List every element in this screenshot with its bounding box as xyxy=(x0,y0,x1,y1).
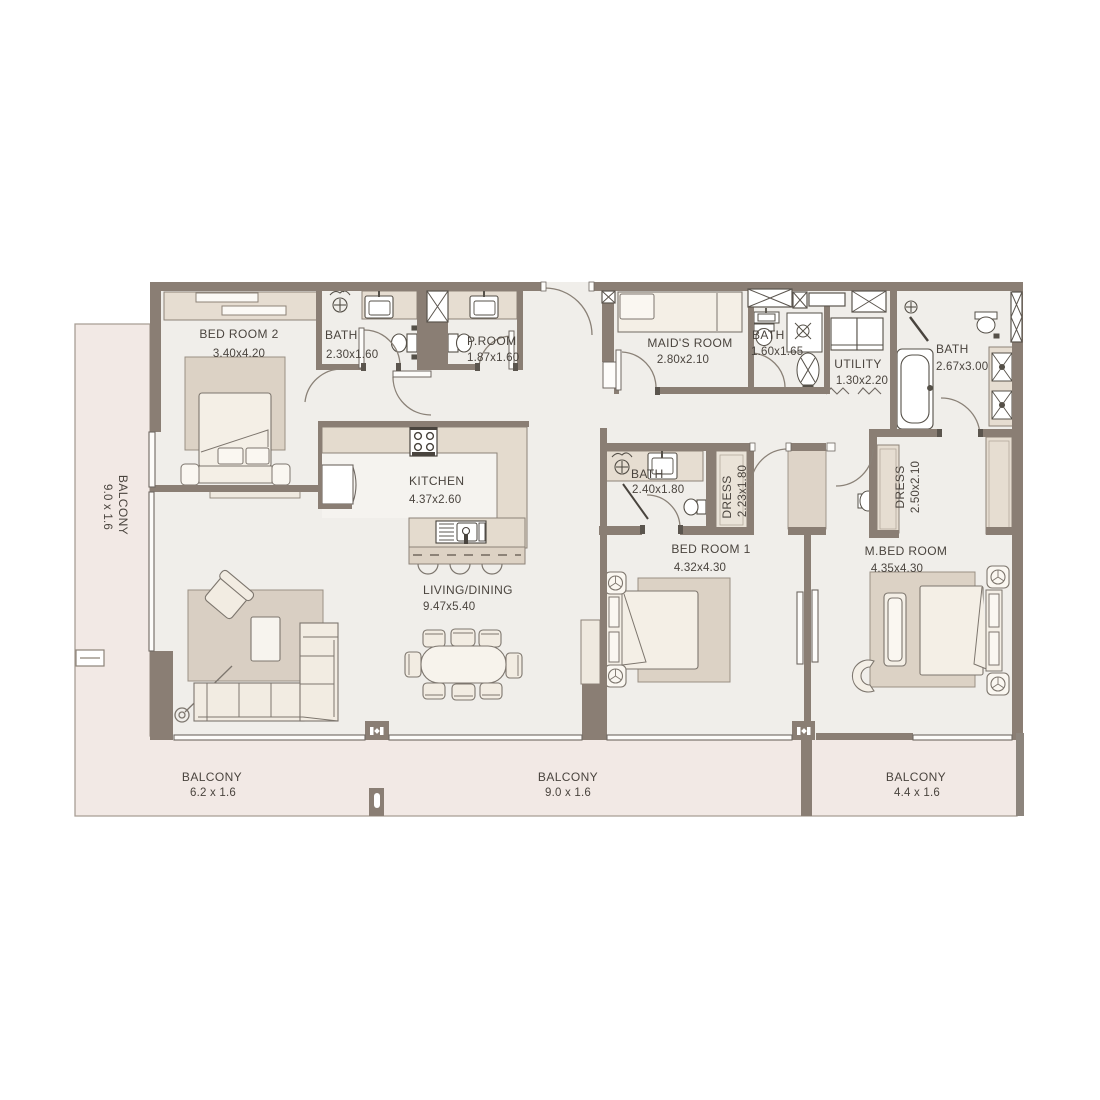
svg-text:BATH: BATH xyxy=(936,342,969,356)
svg-text:BALCONY: BALCONY xyxy=(886,770,946,784)
svg-text:6.2 x 1.6: 6.2 x 1.6 xyxy=(190,787,236,799)
svg-text:BED ROOM 1: BED ROOM 1 xyxy=(671,542,750,556)
svg-text:BALCONY: BALCONY xyxy=(116,475,130,535)
svg-text:LIVING/DINING: LIVING/DINING xyxy=(423,583,513,597)
svg-text:2.30x1.60: 2.30x1.60 xyxy=(326,349,378,361)
svg-text:DRESS: DRESS xyxy=(720,475,734,518)
svg-text:BATH: BATH xyxy=(752,328,785,342)
svg-text:BALCONY: BALCONY xyxy=(182,770,242,784)
svg-text:4.32x4.30: 4.32x4.30 xyxy=(674,562,726,574)
svg-text:DRESS: DRESS xyxy=(893,465,907,508)
svg-text:1.60x1.65: 1.60x1.65 xyxy=(751,346,803,358)
svg-text:2.67x3.00: 2.67x3.00 xyxy=(936,361,988,373)
svg-text:1.87x1.60: 1.87x1.60 xyxy=(467,352,519,364)
svg-text:9.0 x 1.6: 9.0 x 1.6 xyxy=(101,484,113,530)
svg-text:UTILITY: UTILITY xyxy=(834,357,881,371)
svg-text:2.40x1.80: 2.40x1.80 xyxy=(632,484,684,496)
svg-text:KITCHEN: KITCHEN xyxy=(409,474,464,488)
svg-text:BALCONY: BALCONY xyxy=(538,770,598,784)
svg-text:9.47x5.40: 9.47x5.40 xyxy=(423,601,475,613)
svg-text:1.30x2.20: 1.30x2.20 xyxy=(836,375,888,387)
svg-text:3.40x4.20: 3.40x4.20 xyxy=(213,348,265,360)
svg-text:2.80x2.10: 2.80x2.10 xyxy=(657,354,709,366)
svg-text:BED ROOM 2: BED ROOM 2 xyxy=(199,327,278,341)
svg-text:4.35x4.30: 4.35x4.30 xyxy=(871,563,923,575)
svg-text:4.4 x 1.6: 4.4 x 1.6 xyxy=(894,787,940,799)
svg-text:MAID'S ROOM: MAID'S ROOM xyxy=(647,336,732,350)
svg-text:M.BED ROOM: M.BED ROOM xyxy=(865,544,948,558)
svg-text:BATH: BATH xyxy=(325,328,358,342)
svg-text:4.37x2.60: 4.37x2.60 xyxy=(409,494,461,506)
svg-text:P.ROOM: P.ROOM xyxy=(467,334,517,348)
svg-text:BATH: BATH xyxy=(631,467,664,481)
svg-text:2.23x1.80: 2.23x1.80 xyxy=(737,465,749,517)
svg-text:9.0 x 1.6: 9.0 x 1.6 xyxy=(545,787,591,799)
svg-text:2.50x2.10: 2.50x2.10 xyxy=(910,461,922,513)
